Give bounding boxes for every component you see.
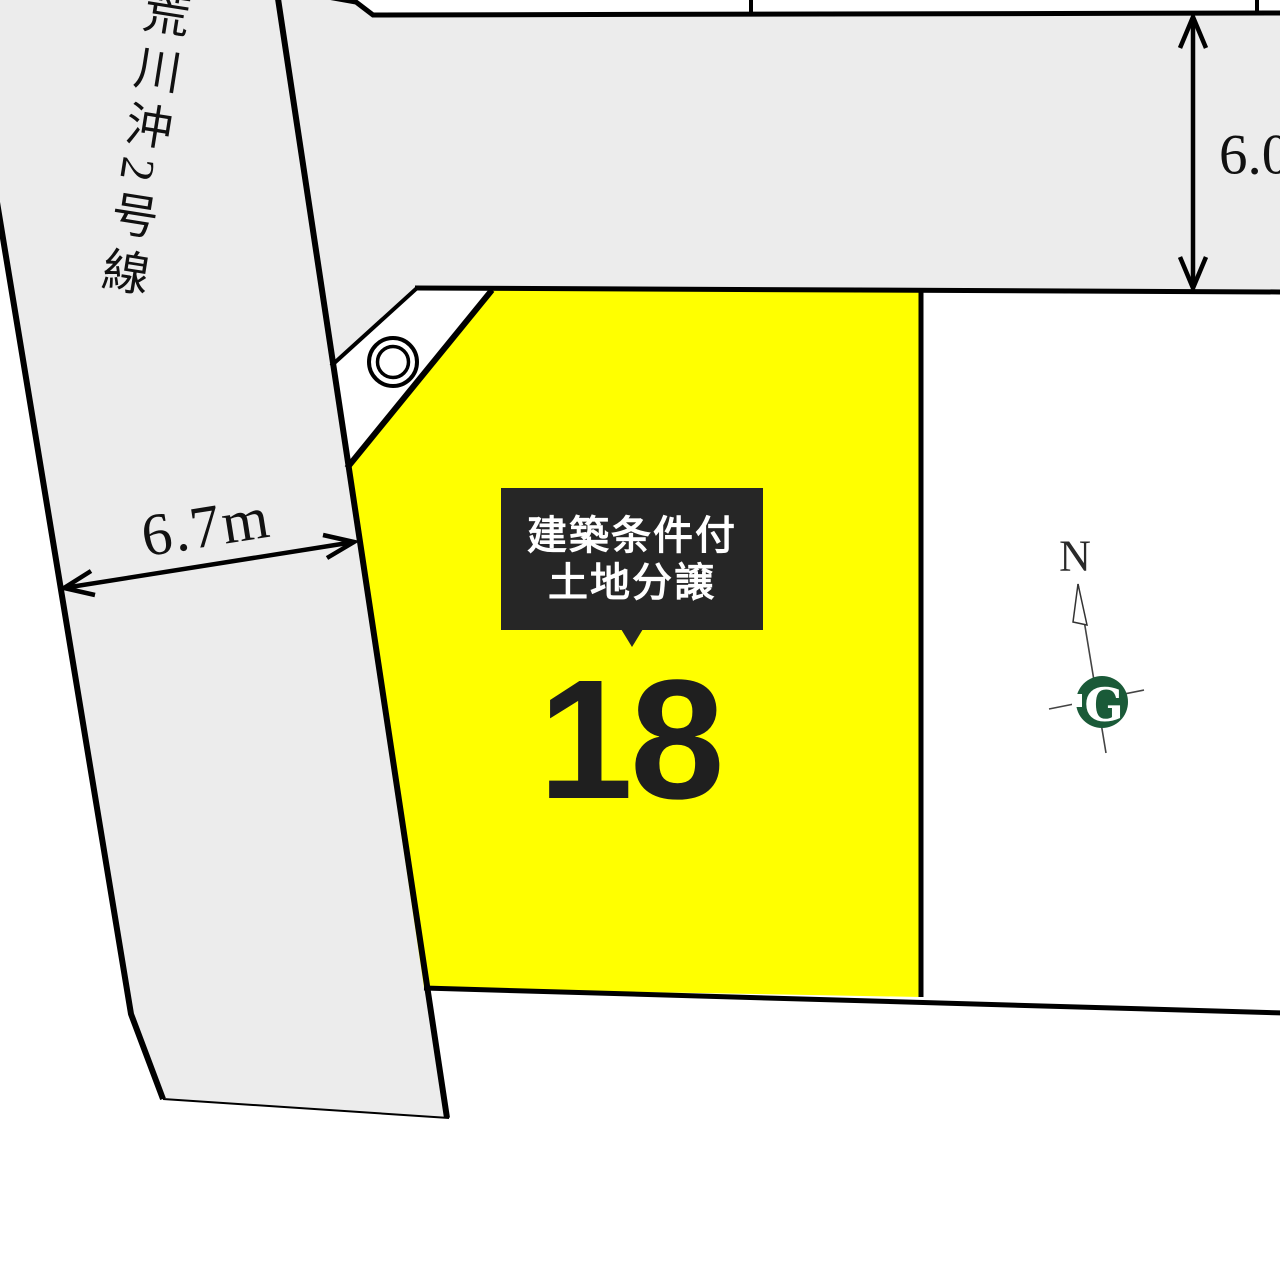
compass-north-label: N bbox=[1059, 531, 1091, 582]
logo-letter: G bbox=[1084, 678, 1123, 732]
lot-number: 18 bbox=[538, 655, 721, 825]
road-width-label-6-0m: 6.0m bbox=[1219, 123, 1280, 188]
badge-line2: 土地分譲 bbox=[548, 563, 716, 603]
lot-condition-badge: 建築条件付 土地分譲 bbox=[501, 488, 763, 630]
compass-needle-head bbox=[1073, 584, 1087, 625]
badge-line1: 建築条件付 bbox=[527, 516, 737, 556]
logo-notch bbox=[1072, 694, 1082, 707]
compass: G bbox=[1049, 584, 1144, 753]
north-plot-boundary bbox=[322, 0, 1280, 15]
plot-map: G 荒川沖2号線 6.7m 6.0m 建築条件付 土地分譲 18 N bbox=[0, 0, 1280, 1280]
